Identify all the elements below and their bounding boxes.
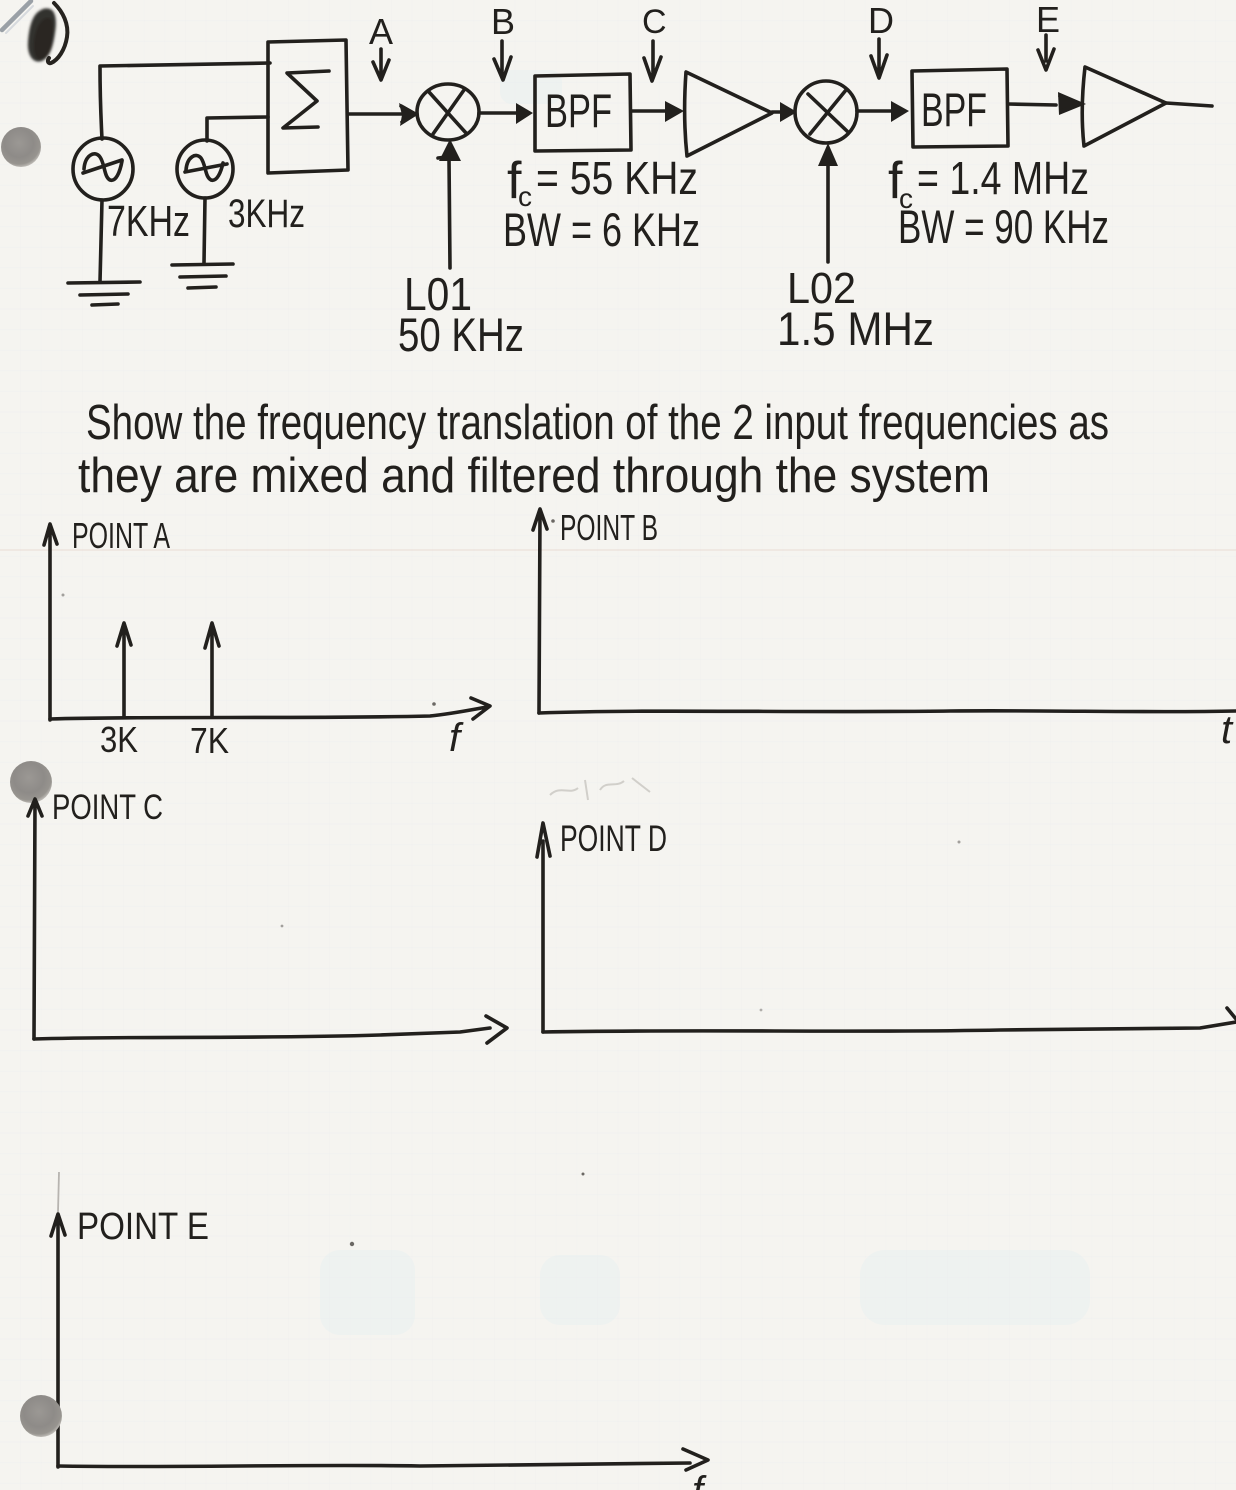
svg-text:POINT A: POINT A — [72, 515, 170, 556]
svg-text:they are mixed and filtered th: they are mixed and filtered through the … — [78, 449, 990, 503]
svg-text:BW = 90 KHz: BW = 90 KHz — [898, 200, 1109, 253]
svg-text:= 1.4 MHz: = 1.4 MHz — [917, 152, 1089, 204]
svg-text:B: B — [491, 1, 515, 42]
svg-text:t: t — [1221, 708, 1234, 752]
svg-text:BW = 6 KHz: BW = 6 KHz — [503, 203, 700, 256]
svg-text:E: E — [1036, 0, 1060, 40]
svg-text:3K: 3K — [100, 719, 138, 760]
svg-text:POINT D: POINT D — [560, 818, 667, 859]
svg-text:BPF: BPF — [921, 83, 987, 136]
svg-text:3KHz: 3KHz — [228, 192, 305, 236]
svg-text:50 KHz: 50 KHz — [398, 308, 524, 361]
svg-text:POINT C: POINT C — [52, 788, 163, 827]
svg-text:Show the frequency translation: Show the frequency translation of the 2 … — [86, 396, 1109, 450]
svg-text:7KHz: 7KHz — [107, 197, 190, 246]
svg-text:POINT E: POINT E — [77, 1206, 209, 1248]
svg-text:A: A — [369, 11, 393, 52]
svg-text:D: D — [868, 0, 894, 41]
svg-text:C: C — [642, 3, 667, 41]
svg-text:BPF: BPF — [545, 84, 612, 137]
svg-text:POINT B: POINT B — [560, 507, 658, 548]
svg-text:= 55 KHz: = 55 KHz — [536, 152, 698, 204]
svg-text:1.5 MHz: 1.5 MHz — [777, 302, 934, 355]
svg-text:7K: 7K — [190, 720, 229, 761]
